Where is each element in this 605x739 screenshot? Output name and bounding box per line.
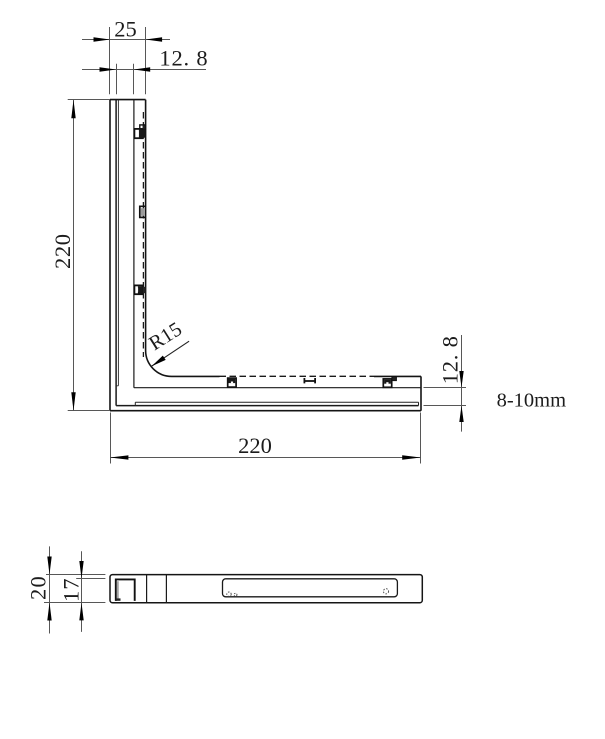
svg-text:25: 25 — [114, 17, 137, 42]
svg-text:220: 220 — [238, 433, 272, 458]
svg-text:220: 220 — [50, 233, 75, 269]
svg-text:8-10mm: 8-10mm — [497, 390, 567, 412]
svg-text:17: 17 — [58, 578, 83, 603]
svg-text:12. 8: 12. 8 — [159, 45, 208, 70]
svg-text:12. 8: 12. 8 — [438, 335, 463, 384]
svg-text:20: 20 — [25, 575, 50, 600]
svg-text:R15: R15 — [145, 318, 186, 355]
